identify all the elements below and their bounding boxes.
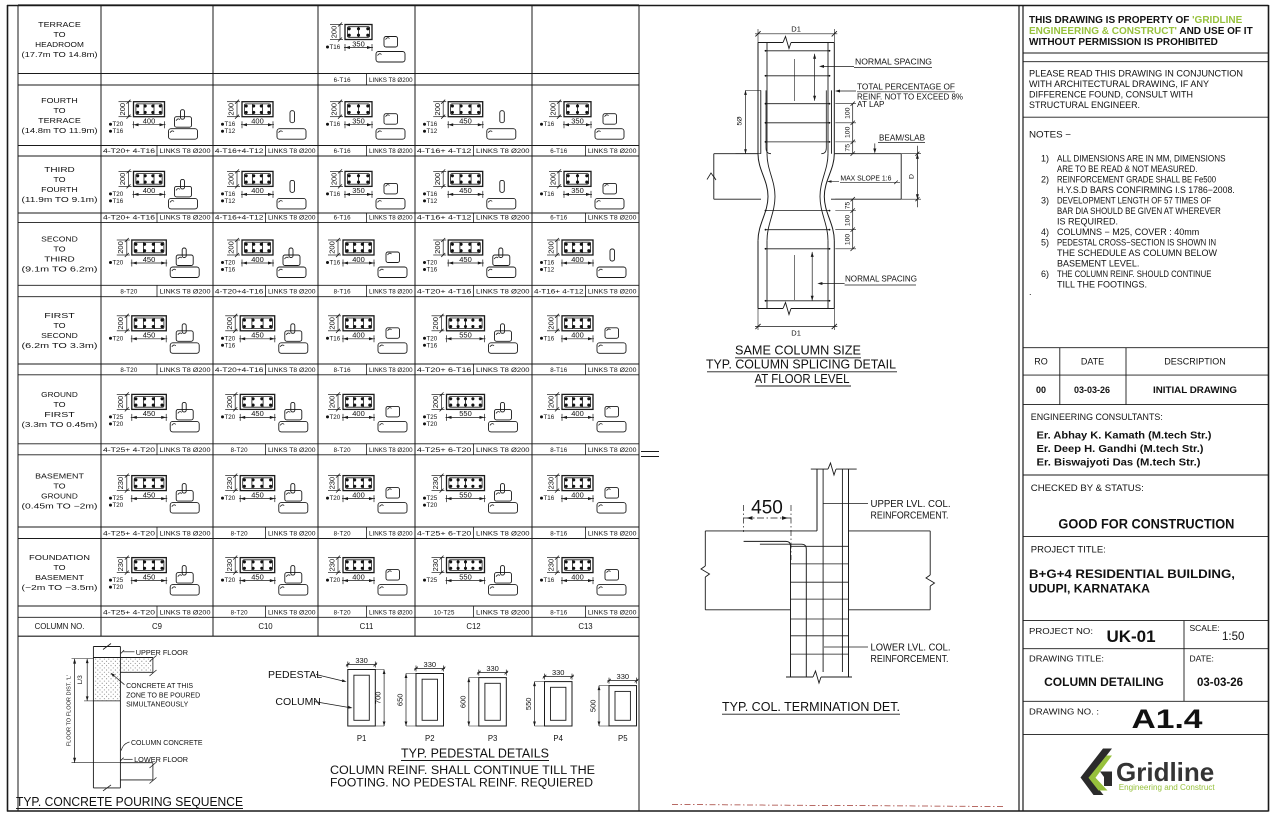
svg-text:PLEASE READ THIS DRAWING IN CO: PLEASE READ THIS DRAWING IN CONJUNCTION xyxy=(1029,69,1243,79)
svg-text:(9.1m TO 6.2m): (9.1m TO 6.2m) xyxy=(22,264,98,273)
svg-text:T16: T16 xyxy=(225,191,236,198)
svg-text:LINKS T8 Ø200: LINKS T8 Ø200 xyxy=(369,367,413,374)
svg-text:C11: C11 xyxy=(360,622,374,631)
svg-text:T20: T20 xyxy=(225,495,236,502)
svg-text:6-T16: 6-T16 xyxy=(550,215,568,222)
svg-text:T16: T16 xyxy=(427,191,438,198)
svg-text:8-T20: 8-T20 xyxy=(231,447,249,454)
svg-text:A1.4: A1.4 xyxy=(1132,704,1203,734)
svg-text:450: 450 xyxy=(251,572,264,581)
svg-text:T20: T20 xyxy=(113,584,124,591)
svg-text:400: 400 xyxy=(143,186,156,195)
svg-text:ARE TO BE READ & NOT MEASURED.: ARE TO BE READ & NOT MEASURED. xyxy=(1057,164,1197,174)
svg-text:T16: T16 xyxy=(544,260,555,267)
svg-text:400: 400 xyxy=(251,117,264,126)
svg-text:TO: TO xyxy=(53,321,66,330)
svg-text:LINKS T8 Ø200: LINKS T8 Ø200 xyxy=(588,289,637,296)
svg-text:230: 230 xyxy=(225,477,234,490)
svg-text:T16: T16 xyxy=(544,414,555,421)
svg-text:LINKS T8 Ø200: LINKS T8 Ø200 xyxy=(369,77,413,84)
svg-text:8-T20: 8-T20 xyxy=(231,531,249,538)
svg-text:LINKS T8 Ø200: LINKS T8 Ø200 xyxy=(268,609,316,616)
svg-text:LINKS T8 Ø200: LINKS T8 Ø200 xyxy=(588,148,637,155)
svg-text:2): 2) xyxy=(1041,175,1049,185)
svg-text:5Ø: 5Ø xyxy=(737,116,744,126)
svg-text:200: 200 xyxy=(328,317,337,330)
svg-text:4-T20+4-T16: 4-T20+4-T16 xyxy=(215,289,264,296)
svg-text:LINKS T8 Ø200: LINKS T8 Ø200 xyxy=(369,289,413,296)
svg-text:8-T16: 8-T16 xyxy=(550,531,568,538)
svg-text:LINKS T8 Ø200: LINKS T8 Ø200 xyxy=(476,215,530,222)
svg-text:230: 230 xyxy=(547,477,556,490)
svg-text:T20: T20 xyxy=(330,414,341,421)
svg-text:T12: T12 xyxy=(544,267,555,274)
svg-text:NOTES −: NOTES − xyxy=(1029,130,1071,140)
svg-text:T16: T16 xyxy=(427,267,438,274)
svg-text:T16: T16 xyxy=(544,191,555,198)
svg-text:200: 200 xyxy=(225,317,234,330)
svg-text:PROJECT NO:: PROJECT NO: xyxy=(1029,626,1093,636)
svg-text:LINKS T8 Ø200: LINKS T8 Ø200 xyxy=(588,367,637,374)
svg-text:ENGINEERING & CONSTRUCT' AND U: ENGINEERING & CONSTRUCT' AND USE OF IT xyxy=(1029,26,1253,37)
svg-text:75: 75 xyxy=(845,144,852,152)
svg-text:IS REQUIRED.: IS REQUIRED. xyxy=(1057,217,1118,227)
svg-text:D1: D1 xyxy=(791,329,801,338)
svg-text:03-03-26: 03-03-26 xyxy=(1197,677,1243,689)
svg-text:8-T20: 8-T20 xyxy=(334,447,352,454)
svg-text:500: 500 xyxy=(589,700,598,713)
svg-text:330: 330 xyxy=(486,664,499,673)
svg-text:100: 100 xyxy=(845,234,852,246)
svg-text:200: 200 xyxy=(547,317,556,330)
svg-text:D: D xyxy=(909,174,916,179)
svg-text:6-T16: 6-T16 xyxy=(334,77,352,84)
svg-text:LINKS T8 Ø200: LINKS T8 Ø200 xyxy=(588,531,637,538)
svg-text:T25: T25 xyxy=(113,414,124,421)
svg-text:4-T25+ 6-T20: 4-T25+ 6-T20 xyxy=(417,531,472,538)
svg-text:T20: T20 xyxy=(330,577,341,584)
svg-text:COLUMN DETAILING: COLUMN DETAILING xyxy=(1044,675,1164,689)
svg-text:75: 75 xyxy=(845,202,852,210)
svg-text:T16: T16 xyxy=(330,191,341,198)
svg-text:FLOOR TO FLOOR DIST. 'L': FLOOR TO FLOOR DIST. 'L' xyxy=(67,675,73,746)
svg-text:REINFORCEMENT.: REINFORCEMENT. xyxy=(871,511,949,522)
svg-text:T25: T25 xyxy=(113,495,124,502)
svg-text:L/3: L/3 xyxy=(77,675,84,684)
svg-text:LINKS T8 Ø200: LINKS T8 Ø200 xyxy=(160,367,212,374)
svg-text:REINFORCEMENT GRADE SHALL BE F: REINFORCEMENT GRADE SHALL BE Fe500 xyxy=(1057,175,1216,185)
svg-text:4-T25+ 4-T20: 4-T25+ 4-T20 xyxy=(103,531,156,538)
svg-text:(0.45m TO −2m): (0.45m TO −2m) xyxy=(22,501,98,510)
svg-text:4): 4) xyxy=(1041,227,1049,237)
svg-text:450: 450 xyxy=(143,572,156,581)
svg-text:1): 1) xyxy=(1041,154,1049,164)
svg-text:450: 450 xyxy=(751,498,783,519)
svg-text:3): 3) xyxy=(1041,196,1049,206)
svg-text:TO: TO xyxy=(53,400,66,409)
svg-text:8-T16: 8-T16 xyxy=(334,289,352,296)
svg-text:450: 450 xyxy=(459,186,472,195)
svg-text:LINKS T8 Ø200: LINKS T8 Ø200 xyxy=(588,447,637,454)
svg-text:TO: TO xyxy=(53,175,66,184)
svg-text:600: 600 xyxy=(458,696,467,709)
svg-text:LINKS T8 Ø200: LINKS T8 Ø200 xyxy=(160,447,212,454)
svg-text:LINKS T8 Ø200: LINKS T8 Ø200 xyxy=(369,609,413,616)
svg-text:230: 230 xyxy=(225,559,234,572)
svg-text:4-T20+ 6-T16: 4-T20+ 6-T16 xyxy=(417,367,472,374)
svg-text:T16: T16 xyxy=(427,342,438,349)
svg-text:LINKS T8 Ø200: LINKS T8 Ø200 xyxy=(268,367,316,374)
svg-text:100: 100 xyxy=(845,215,852,227)
svg-text:GOOD FOR CONSTRUCTION: GOOD FOR CONSTRUCTION xyxy=(1058,517,1234,532)
svg-text:T25: T25 xyxy=(113,577,124,584)
svg-text:COLUMN CONCRETE: COLUMN CONCRETE xyxy=(131,740,203,747)
svg-text:THIRD: THIRD xyxy=(44,254,75,263)
svg-text:PEDESTAL CROSS−SECTION IS SHOW: PEDESTAL CROSS−SECTION IS SHOWN IN xyxy=(1057,238,1216,248)
svg-text:FOURTH: FOURTH xyxy=(41,96,78,105)
svg-text:450: 450 xyxy=(251,490,264,499)
svg-text:T20: T20 xyxy=(113,191,124,198)
svg-text:400: 400 xyxy=(143,117,156,126)
svg-text:TOTAL PERCENTAGE OF: TOTAL PERCENTAGE OF xyxy=(857,83,955,92)
svg-text:4-T20+ 4-T16: 4-T20+ 4-T16 xyxy=(417,289,472,296)
svg-text:T12: T12 xyxy=(225,128,236,135)
svg-text:(17.7m TO 14.8m): (17.7m TO 14.8m) xyxy=(22,50,98,59)
svg-text:6-T16: 6-T16 xyxy=(334,148,352,155)
svg-text:T20: T20 xyxy=(427,335,438,342)
svg-text:T25: T25 xyxy=(427,495,438,502)
svg-text:330: 330 xyxy=(617,672,630,681)
svg-text:T20: T20 xyxy=(225,577,236,584)
svg-text:8-T16: 8-T16 xyxy=(550,609,568,616)
svg-text:T12: T12 xyxy=(225,198,236,205)
svg-text:550: 550 xyxy=(524,698,533,711)
svg-text:400: 400 xyxy=(352,572,365,581)
svg-text:650: 650 xyxy=(396,694,405,707)
svg-text:330: 330 xyxy=(424,660,437,669)
svg-text:400: 400 xyxy=(571,409,584,418)
svg-text:T20: T20 xyxy=(427,502,438,509)
svg-text:T25: T25 xyxy=(427,577,438,584)
svg-text:D1: D1 xyxy=(791,25,801,34)
svg-text:FIRST: FIRST xyxy=(44,410,75,419)
svg-text:TERRACE: TERRACE xyxy=(38,116,81,125)
svg-text:PROJECT TITLE:: PROJECT TITLE: xyxy=(1031,545,1106,555)
svg-text:6): 6) xyxy=(1041,269,1049,279)
svg-text:450: 450 xyxy=(143,331,156,340)
svg-text:200: 200 xyxy=(433,241,442,254)
svg-text:TYP. COL. TERMINATION DET.: TYP. COL. TERMINATION DET. xyxy=(722,699,900,714)
svg-text:TYP. PEDESTAL DETAILS: TYP. PEDESTAL DETAILS xyxy=(401,746,549,761)
svg-text:T16: T16 xyxy=(544,577,555,584)
svg-text:FIRST: FIRST xyxy=(44,311,75,320)
svg-text:T16: T16 xyxy=(113,128,124,135)
svg-text:NORMAL SPACING: NORMAL SPACING xyxy=(855,58,932,67)
svg-text:450: 450 xyxy=(459,255,472,264)
svg-text:P5: P5 xyxy=(618,734,628,743)
svg-text:BASEMENT LEVEL.: BASEMENT LEVEL. xyxy=(1057,259,1139,269)
svg-text:NORMAL SPACING: NORMAL SPACING xyxy=(845,275,917,284)
svg-text:6-T16: 6-T16 xyxy=(550,148,568,155)
svg-text:400: 400 xyxy=(571,331,584,340)
svg-text:LINKS T8 Ø200: LINKS T8 Ø200 xyxy=(588,215,637,222)
svg-text:TERRACE: TERRACE xyxy=(38,20,81,29)
svg-text:DRAWING NO. :: DRAWING NO. : xyxy=(1029,707,1099,717)
svg-text:SIMULTANEOUSLY: SIMULTANEOUSLY xyxy=(126,702,189,709)
svg-text:400: 400 xyxy=(352,409,365,418)
svg-text:230: 230 xyxy=(431,559,440,572)
svg-text:8-T20: 8-T20 xyxy=(120,289,138,296)
svg-text:400: 400 xyxy=(571,255,584,264)
svg-text:200: 200 xyxy=(330,103,339,116)
svg-text:200: 200 xyxy=(227,173,236,186)
svg-text:TO: TO xyxy=(53,30,66,39)
svg-text:330: 330 xyxy=(355,656,368,665)
svg-text:T16: T16 xyxy=(225,267,236,274)
svg-text:450: 450 xyxy=(143,490,156,499)
svg-text:UPPER LVL. COL.: UPPER LVL. COL. xyxy=(871,499,951,510)
svg-text:WITH ARCHITECTURAL DRAWING, IF: WITH ARCHITECTURAL DRAWING, IF ANY xyxy=(1029,79,1209,89)
svg-text:T12: T12 xyxy=(427,128,438,135)
svg-text:230: 230 xyxy=(116,559,125,572)
svg-text:LINKS T8 Ø200: LINKS T8 Ø200 xyxy=(369,447,413,454)
svg-text:LINKS T8 Ø200: LINKS T8 Ø200 xyxy=(369,215,413,222)
svg-text:LINKS T8 Ø200: LINKS T8 Ø200 xyxy=(476,289,530,296)
svg-text:UPPER FLOOR: UPPER FLOOR xyxy=(136,648,188,657)
svg-text:FOUNDATION: FOUNDATION xyxy=(29,553,90,562)
svg-text:200: 200 xyxy=(431,396,440,409)
svg-text:HEADROOM: HEADROOM xyxy=(35,40,84,49)
svg-text:P2: P2 xyxy=(425,734,435,743)
svg-text:8-T16: 8-T16 xyxy=(550,447,568,454)
svg-text:4-T16+ 4-T12: 4-T16+ 4-T12 xyxy=(534,289,584,296)
svg-text:T16: T16 xyxy=(544,121,555,128)
svg-text:SECOND: SECOND xyxy=(41,234,78,243)
svg-text:CHECKED BY & STATUS:: CHECKED BY & STATUS: xyxy=(1031,483,1144,493)
svg-text:350: 350 xyxy=(352,117,365,126)
svg-text:550: 550 xyxy=(459,572,472,581)
svg-text:Er. Deep H. Gandhi (M.tech S: Er. Deep H. Gandhi (M.tech Str.) xyxy=(1037,444,1204,455)
svg-text:10-T25: 10-T25 xyxy=(434,609,455,616)
svg-text:400: 400 xyxy=(352,255,365,264)
svg-text:SECOND: SECOND xyxy=(41,331,78,340)
svg-text:(11.9m TO 9.1m): (11.9m TO 9.1m) xyxy=(22,195,98,204)
svg-text:LINKS T8 Ø200: LINKS T8 Ø200 xyxy=(476,367,530,374)
svg-text:THIS DRAWING IS PROPERTY OF 'G: THIS DRAWING IS PROPERTY OF 'GRIDLINE xyxy=(1029,15,1243,26)
svg-text:P1: P1 xyxy=(357,734,367,743)
svg-text:C9: C9 xyxy=(152,622,162,631)
svg-text:LINKS T8 Ø200: LINKS T8 Ø200 xyxy=(160,531,212,538)
svg-text:230: 230 xyxy=(547,559,556,572)
svg-text:8-T20: 8-T20 xyxy=(334,609,352,616)
svg-text:COLUMNS − M25, COVER : 40mm: COLUMNS − M25, COVER : 40mm xyxy=(1057,227,1199,237)
svg-text:1:50: 1:50 xyxy=(1222,631,1244,643)
svg-text:400: 400 xyxy=(352,490,365,499)
svg-text:THE COLUMN REINF. SHOULD CONTI: THE COLUMN REINF. SHOULD CONTINUE xyxy=(1057,269,1211,279)
svg-text:LINKS T8 Ø200: LINKS T8 Ø200 xyxy=(160,215,212,222)
svg-text:T16: T16 xyxy=(330,335,341,342)
svg-text:COLUMN: COLUMN xyxy=(275,696,321,708)
svg-text:H.Y.S.D BARS CONFIRMING I.S 17: H.Y.S.D BARS CONFIRMING I.S 1786−2008. xyxy=(1057,185,1235,195)
svg-text:TO: TO xyxy=(53,481,66,490)
svg-text:200: 200 xyxy=(118,103,127,116)
svg-text:450: 450 xyxy=(143,255,156,264)
svg-text:4-T20+ 4-T16: 4-T20+ 4-T16 xyxy=(103,148,156,155)
svg-text:400: 400 xyxy=(251,255,264,264)
svg-text:450: 450 xyxy=(459,117,472,126)
svg-text:(14.8m TO 11.9m): (14.8m TO 11.9m) xyxy=(22,126,98,135)
svg-text:350: 350 xyxy=(571,186,584,195)
svg-text:330: 330 xyxy=(552,668,565,677)
svg-text:T16: T16 xyxy=(427,121,438,128)
svg-text:DATE: DATE xyxy=(1081,357,1104,367)
svg-text:T20: T20 xyxy=(427,260,438,267)
svg-text:LINKS T8 Ø200: LINKS T8 Ø200 xyxy=(268,531,316,538)
svg-text:4-T25+ 4-T20: 4-T25+ 4-T20 xyxy=(103,609,156,616)
svg-text:.: . xyxy=(1029,287,1032,297)
svg-text:TYP. CONCRETE POURING SEQUENCE: TYP. CONCRETE POURING SEQUENCE xyxy=(16,795,243,809)
svg-text:4-T16+ 4-T12: 4-T16+ 4-T12 xyxy=(417,215,472,222)
svg-text:Er. Biswajyoti Das (M.tech S: Er. Biswajyoti Das (M.tech Str.) xyxy=(1037,458,1201,469)
svg-text:T16: T16 xyxy=(225,121,236,128)
svg-text:UK-01: UK-01 xyxy=(1106,627,1155,646)
svg-text:4-T16+4-T12: 4-T16+4-T12 xyxy=(215,215,264,222)
svg-text:BASEMENT: BASEMENT xyxy=(35,471,85,480)
svg-text:200: 200 xyxy=(547,396,556,409)
svg-text:T16: T16 xyxy=(330,44,341,51)
svg-text:C10: C10 xyxy=(258,622,273,631)
svg-text:LINKS T8 Ø200: LINKS T8 Ø200 xyxy=(476,148,530,155)
svg-text:400: 400 xyxy=(571,572,584,581)
svg-text:T20: T20 xyxy=(113,121,124,128)
svg-text:100: 100 xyxy=(845,126,852,138)
svg-text:200: 200 xyxy=(116,396,125,409)
svg-text:03-03-26: 03-03-26 xyxy=(1074,385,1110,395)
svg-text:LINKS T8 Ø200: LINKS T8 Ø200 xyxy=(476,447,530,454)
svg-text:200: 200 xyxy=(118,173,127,186)
svg-text:100: 100 xyxy=(845,107,852,119)
svg-text:THE SCHEDULE AS COLUMN BELOW: THE SCHEDULE AS COLUMN BELOW xyxy=(1057,248,1218,258)
svg-text:450: 450 xyxy=(143,409,156,418)
svg-text:T20: T20 xyxy=(113,260,124,267)
svg-text:T20: T20 xyxy=(113,421,124,428)
svg-text:200: 200 xyxy=(330,26,339,39)
svg-text:450: 450 xyxy=(251,331,264,340)
svg-text:T20: T20 xyxy=(225,414,236,421)
svg-text:LINKS T8 Ø200: LINKS T8 Ø200 xyxy=(476,531,530,538)
svg-text:COLUMN NO.: COLUMN NO. xyxy=(35,622,85,631)
svg-text:WITHOUT PERMISSION IS PROHIBIT: WITHOUT PERMISSION IS PROHIBITED xyxy=(1029,37,1218,48)
svg-text:ALL DIMENSIONS ARE IN MM, DIME: ALL DIMENSIONS ARE IN MM, DIMENSIONS xyxy=(1057,154,1226,164)
svg-text:RO: RO xyxy=(1034,357,1048,367)
svg-text:Engineering and Construct: Engineering and Construct xyxy=(1119,782,1216,792)
svg-text:700: 700 xyxy=(374,692,383,705)
svg-text:8-T20: 8-T20 xyxy=(334,531,352,538)
svg-text:(3.3m TO 0.45m): (3.3m TO 0.45m) xyxy=(22,420,98,429)
svg-text:8-T20: 8-T20 xyxy=(231,609,249,616)
svg-text:UDUPI, KARNATAKA: UDUPI, KARNATAKA xyxy=(1029,582,1150,596)
svg-text:T16: T16 xyxy=(330,121,341,128)
svg-text:TO: TO xyxy=(53,563,66,572)
svg-text:550: 550 xyxy=(459,331,472,340)
svg-text:4-T25+ 6-T20: 4-T25+ 6-T20 xyxy=(417,447,472,454)
svg-text:8-T16: 8-T16 xyxy=(550,367,568,374)
svg-text:REINFORCEMENT.: REINFORCEMENT. xyxy=(871,654,949,665)
svg-text:MAX SLOPE 1:6: MAX SLOPE 1:6 xyxy=(840,173,891,182)
svg-text:230: 230 xyxy=(328,477,337,490)
svg-text:400: 400 xyxy=(251,186,264,195)
svg-text:T16: T16 xyxy=(544,495,555,502)
svg-text:200: 200 xyxy=(227,241,236,254)
svg-text:350: 350 xyxy=(352,186,365,195)
svg-text:STRUCTURAL ENGINEER.: STRUCTURAL ENGINEER. xyxy=(1029,100,1140,110)
svg-text:200: 200 xyxy=(330,173,339,186)
svg-text:DATE:: DATE: xyxy=(1190,654,1214,664)
svg-text:550: 550 xyxy=(459,490,472,499)
svg-text:350: 350 xyxy=(571,117,584,126)
svg-text:SCALE:: SCALE: xyxy=(1190,623,1220,633)
svg-text:THIRD: THIRD xyxy=(44,165,75,174)
svg-text:200: 200 xyxy=(433,103,442,116)
svg-text:T16: T16 xyxy=(330,260,341,267)
svg-text:400: 400 xyxy=(571,490,584,499)
svg-text:LINKS T8 Ø200: LINKS T8 Ø200 xyxy=(160,609,212,616)
svg-text:230: 230 xyxy=(116,477,125,490)
svg-text:200: 200 xyxy=(549,173,558,186)
svg-text:BAR DIA SHOULD BE GIVEN AT WHE: BAR DIA SHOULD BE GIVEN AT WHEREVER xyxy=(1057,206,1221,216)
svg-text:BASEMENT: BASEMENT xyxy=(35,573,85,582)
svg-text:LINKS T8 Ø200: LINKS T8 Ø200 xyxy=(268,148,316,155)
svg-text:200: 200 xyxy=(116,317,125,330)
svg-text:T16: T16 xyxy=(113,198,124,205)
svg-text:200: 200 xyxy=(227,103,236,116)
svg-text:8-T20: 8-T20 xyxy=(120,367,138,374)
svg-text:P4: P4 xyxy=(553,734,563,743)
svg-text:200: 200 xyxy=(431,317,440,330)
svg-text:200: 200 xyxy=(328,241,337,254)
svg-text:TO: TO xyxy=(53,106,66,115)
svg-text:LINKS T8 Ø200: LINKS T8 Ø200 xyxy=(268,215,316,222)
svg-text:TO: TO xyxy=(53,244,66,253)
svg-text:Er. Abhay K. Kamath (M.tech: Er. Abhay K. Kamath (M.tech Str.) xyxy=(1037,431,1212,442)
svg-text:LOWER FLOOR: LOWER FLOOR xyxy=(134,755,188,764)
svg-text:230: 230 xyxy=(328,559,337,572)
svg-text:230: 230 xyxy=(431,477,440,490)
svg-text:5): 5) xyxy=(1041,238,1049,248)
svg-text:FOOTING. NO PEDESTAL REINF. RE: FOOTING. NO PEDESTAL REINF. REQUIERED xyxy=(330,776,593,790)
svg-text:LOWER LVL. COL.: LOWER LVL. COL. xyxy=(871,643,951,654)
svg-text:(6.2m TO 3.3m): (6.2m TO 3.3m) xyxy=(22,341,98,350)
svg-text:C12: C12 xyxy=(466,622,480,631)
svg-text:DIFFERENCE FOUND, CONSULT WITH: DIFFERENCE FOUND, CONSULT WITH xyxy=(1029,90,1193,100)
svg-text:AT FLOOR LEVEL: AT FLOOR LEVEL xyxy=(755,371,850,386)
svg-text:INITIAL DRAWING: INITIAL DRAWING xyxy=(1153,385,1237,395)
svg-text:T20: T20 xyxy=(225,335,236,342)
svg-text:LINKS T8 Ø200: LINKS T8 Ø200 xyxy=(476,609,530,616)
svg-text:350: 350 xyxy=(352,39,365,48)
svg-text:ZONE TO BE POURED: ZONE TO BE POURED xyxy=(126,692,200,699)
svg-text:LINKS T8 Ø200: LINKS T8 Ø200 xyxy=(268,289,316,296)
svg-text:P3: P3 xyxy=(488,734,498,743)
svg-text:TILL THE FOOTINGS.: TILL THE FOOTINGS. xyxy=(1057,280,1147,290)
svg-text:T16: T16 xyxy=(225,342,236,349)
svg-text:200: 200 xyxy=(116,241,125,254)
svg-text:550: 550 xyxy=(459,409,472,418)
svg-text:200: 200 xyxy=(547,241,556,254)
svg-text:200: 200 xyxy=(549,103,558,116)
svg-text:LINKS T8 Ø200: LINKS T8 Ø200 xyxy=(369,148,413,155)
svg-text:C13: C13 xyxy=(578,622,592,631)
